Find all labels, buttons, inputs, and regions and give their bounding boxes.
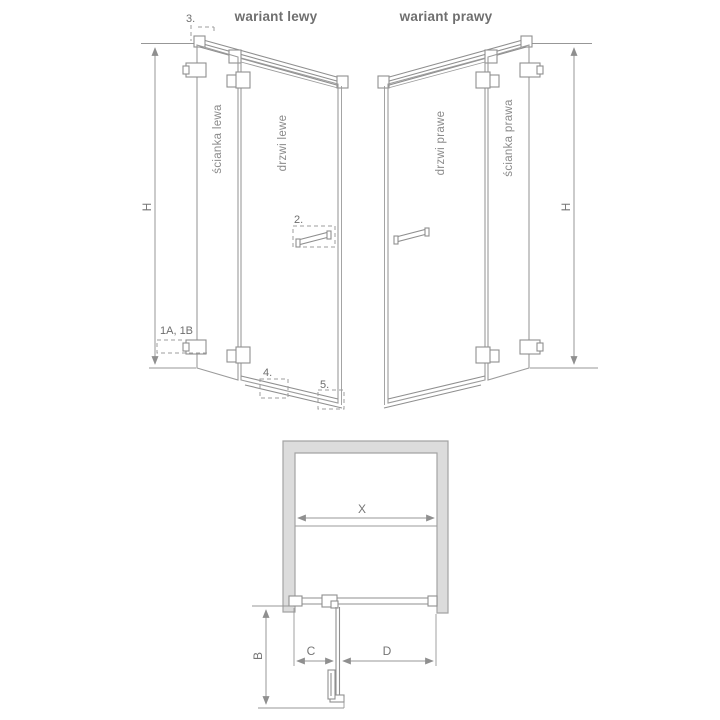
callout-3-label: 3. [186, 13, 195, 25]
plan-open-door [328, 607, 344, 702]
dimension-x: X [298, 502, 434, 518]
right-door-panel [388, 58, 485, 403]
plan-front-track [289, 595, 437, 608]
rail-end-cap-right [337, 76, 348, 88]
plan-view-diagram: X B [251, 441, 448, 708]
dim-label-x: X [358, 502, 366, 516]
dim-label-h-left: H [140, 203, 154, 212]
left-variant-diagram: H 3. [140, 13, 348, 409]
dimension-c: C [294, 608, 333, 666]
left-wall-panel [197, 45, 238, 380]
callout-4-label: 4. [263, 367, 272, 379]
left-wall-clamp-bottom [183, 340, 206, 354]
callout-2-label: 2. [294, 214, 303, 226]
track-wall-profile-right [428, 596, 437, 606]
callout-1a1b-label: 1A, 1B [160, 325, 193, 337]
right-wall-panel [488, 45, 529, 380]
right-wall-label: ścianka prawa [503, 99, 515, 177]
callout-5-label: 5. [320, 379, 329, 391]
diagram-canvas: wariant lewy wariant prawy H 3. [0, 0, 720, 720]
left-door-hinge-bottom [227, 347, 250, 363]
left-door-handle: 2. [293, 214, 335, 247]
header-right-variant: wariant prawy [399, 9, 493, 24]
technical-drawing: wariant lewy wariant prawy H 3. [0, 0, 720, 720]
right-wall-clamp-top [520, 63, 543, 77]
dimension-h-right: H [530, 44, 598, 369]
dimension-h-left: H [140, 44, 196, 369]
plan-walls [283, 441, 448, 613]
door-pivot-detail [331, 601, 338, 608]
right-door-label: drzwi prawe [435, 111, 447, 176]
dim-label-b: B [251, 652, 265, 660]
track-wall-profile-left [289, 596, 302, 606]
dimension-d: D [343, 614, 436, 666]
callout-bottom-corner: 5. [318, 379, 344, 409]
rail-end-cap-left [378, 76, 389, 88]
right-door-hinge-top [476, 72, 499, 88]
left-wall-label: ścianka lewa [212, 104, 224, 174]
left-door-label: drzwi lewe [277, 115, 289, 172]
left-wall-clamp-top [183, 63, 206, 77]
callout-bottom-seal: 4. [260, 367, 288, 398]
dim-label-d: D [383, 644, 392, 658]
dim-label-h-right: H [559, 203, 573, 212]
header-left-variant: wariant lewy [234, 9, 318, 24]
right-door-hinge-bottom [476, 347, 499, 363]
left-door-panel [241, 58, 338, 403]
dim-label-c: C [307, 644, 316, 658]
right-variant-diagram: H [378, 36, 598, 408]
right-door-handle [394, 228, 429, 244]
left-door-hinge-top [227, 72, 250, 88]
right-wall-clamp-bottom [520, 340, 543, 354]
